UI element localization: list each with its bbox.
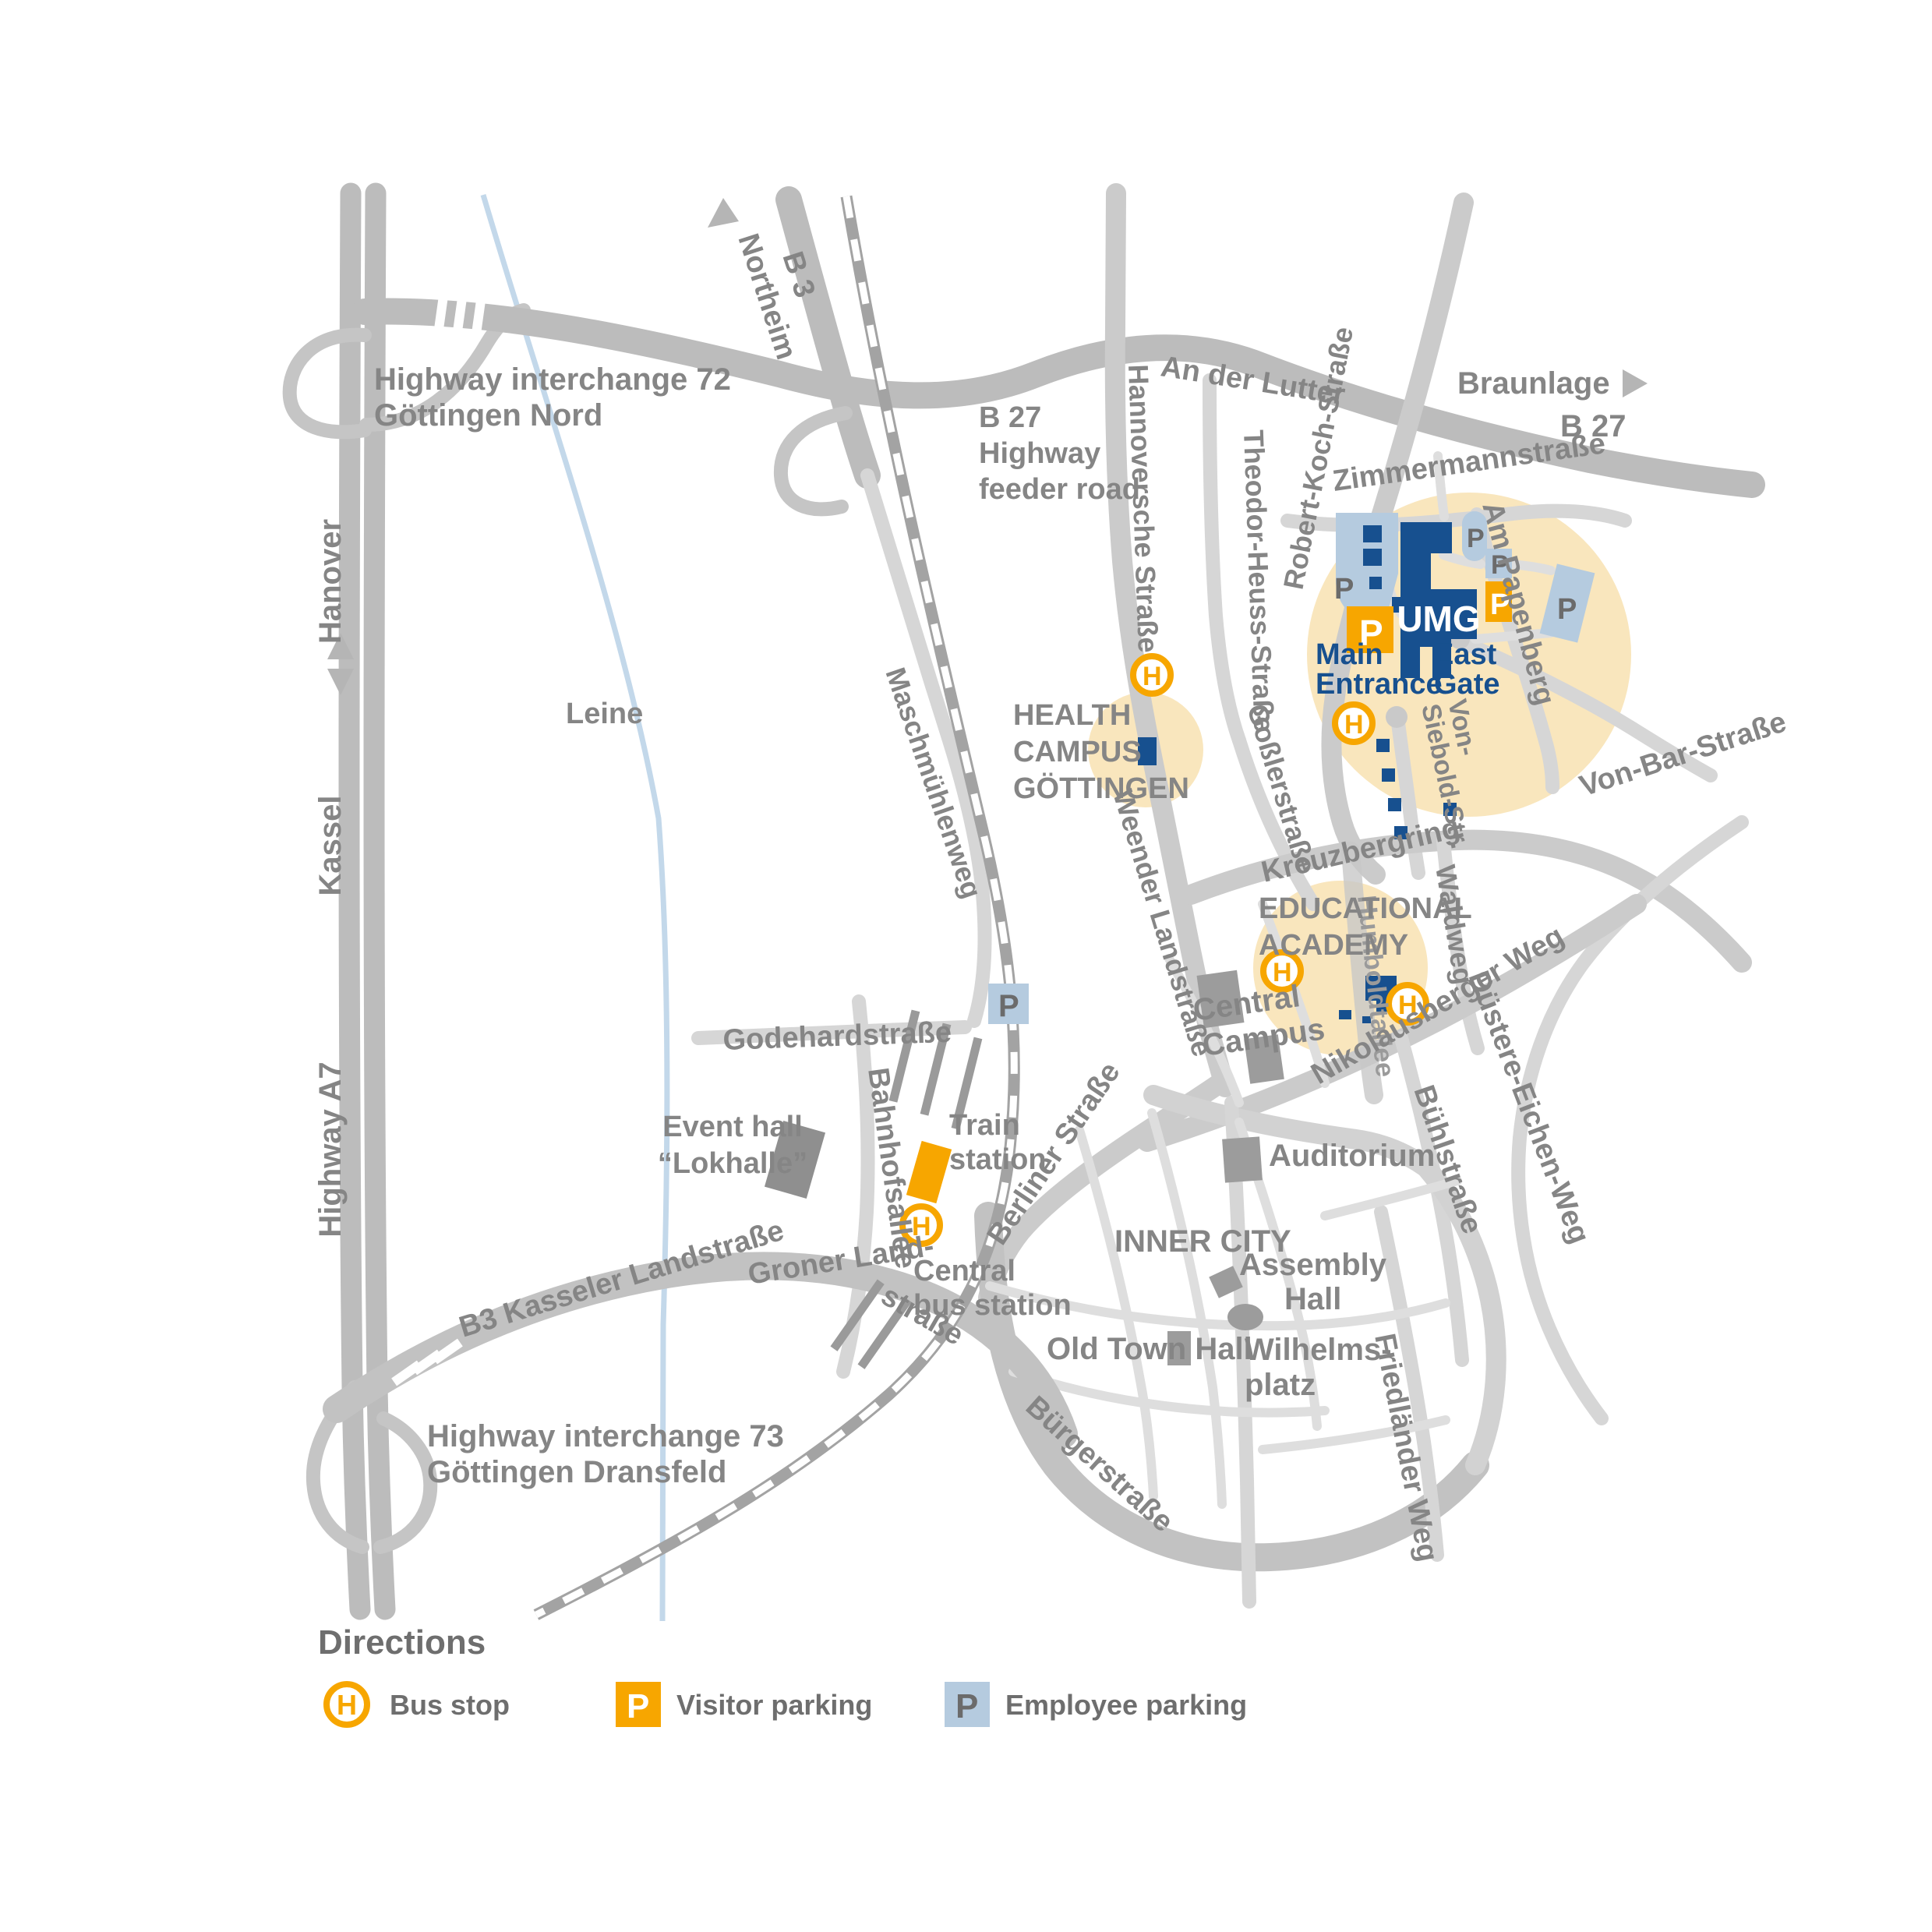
- bridge-gaps: [391, 295, 486, 1386]
- legend-employee-parking: P Employee parking: [945, 1682, 1247, 1727]
- legend-employee-parking-label: Employee parking: [1005, 1689, 1247, 1721]
- east-gate-label-1: East: [1434, 638, 1497, 671]
- wilhelmsplatz-label-2: platz: [1245, 1368, 1316, 1402]
- hanover-label: Hanover: [313, 519, 348, 644]
- train-station-building: [906, 1141, 952, 1203]
- central-bus-station-label-2: bus station: [913, 1289, 1072, 1322]
- kassel-label: Kassel: [313, 796, 348, 896]
- employee-parking-letter: P: [955, 1687, 978, 1725]
- northeim-arrow-icon: [708, 198, 739, 228]
- ramp-b3-loop: [781, 413, 846, 509]
- umg-annex-2: [1363, 549, 1382, 566]
- event-hall-label-2: “Lokhalle”: [658, 1147, 807, 1180]
- b27-feeder-label-1: B 27: [979, 401, 1041, 434]
- interchange73-label-2: Göttingen Dransfeld: [427, 1455, 726, 1489]
- von-siebold-circle: [1386, 706, 1407, 728]
- godehard-label: Godehardstraße: [722, 1016, 952, 1057]
- health-campus-label-2: CAMPUS: [1013, 736, 1142, 768]
- interchange73-label-1: Highway interchange 73: [427, 1419, 784, 1453]
- braunlage-arrow-icon: [1623, 369, 1648, 397]
- legend: Directions H Bus stop P Visitor parking …: [318, 1623, 1247, 1727]
- old-town-hall-label: Old Town Hall: [1047, 1332, 1252, 1366]
- road-theodor-heuss: [1210, 380, 1239, 740]
- employee-parking-icon: P: [1334, 573, 1354, 606]
- bus-stop-icon: H: [337, 1689, 357, 1721]
- bus-stop-icon-health-campus: H: [1133, 656, 1171, 694]
- auditorium-building: [1222, 1136, 1263, 1182]
- legend-bus-stop-label: Bus stop: [390, 1689, 510, 1721]
- duestere-eichen-label: Düstere-Eichen-Weg: [1462, 966, 1596, 1248]
- educational-academy-label-2: ACADEMY: [1259, 929, 1408, 962]
- wilhelmsplatz-building: [1227, 1304, 1263, 1330]
- b27-feeder-label-3: feeder road: [979, 473, 1140, 506]
- east-gate-label-2: Gate: [1434, 668, 1499, 701]
- train-station-label-1: Train: [949, 1109, 1020, 1142]
- bus-letter: H: [1344, 710, 1364, 740]
- visitor-parking-letter: P: [627, 1687, 649, 1725]
- umg-annex-3: [1369, 577, 1382, 589]
- leine-label: Leine: [566, 698, 643, 730]
- assembly-hall-label-2: Hall: [1284, 1282, 1341, 1316]
- interchange72-label-2: Göttingen Nord: [374, 398, 602, 433]
- central-bus-station-label-1: Central: [913, 1255, 1015, 1287]
- academy-annex-1: [1339, 1010, 1351, 1019]
- auditorium-label: Auditorium: [1269, 1139, 1435, 1173]
- train-station-label-2: station: [949, 1143, 1047, 1176]
- highway-a7-label: Highway A7: [313, 1061, 348, 1237]
- health-campus-label-1: HEALTH: [1013, 699, 1131, 732]
- theodor-heuss-label: Theodor-Heuss-Straße: [1238, 429, 1280, 733]
- assembly-hall-label-1: Assembly: [1239, 1248, 1387, 1282]
- legend-bus-stop: H Bus stop: [327, 1684, 510, 1725]
- health-campus-label-3: GÖTTINGEN: [1013, 772, 1189, 805]
- legend-title: Directions: [318, 1623, 486, 1662]
- goettingen-directions-map: P P P P P P P H H H H H: [0, 0, 1932, 1932]
- interchange72-label-1: Highway interchange 72: [374, 362, 731, 397]
- bus-letter: H: [1143, 662, 1162, 691]
- employee-parking-letter: P: [1557, 593, 1577, 626]
- event-hall-label-1: Event hall: [662, 1111, 803, 1143]
- legend-visitor-parking-label: Visitor parking: [676, 1689, 872, 1721]
- main-entrance-label-1: Main: [1316, 638, 1383, 671]
- b27-feeder-label-2: Highway: [979, 437, 1100, 470]
- umg-annex-1: [1363, 525, 1382, 542]
- inner-street-2: [1152, 1113, 1222, 1504]
- main-entrance-label-2: Entrance: [1316, 668, 1443, 701]
- umg-label: UMG: [1397, 599, 1480, 639]
- legend-visitor-parking: P Visitor parking: [616, 1682, 872, 1727]
- bus-stop-icon-umg: H: [1335, 705, 1372, 742]
- employee-parking-letter: P: [998, 989, 1019, 1023]
- educational-academy-label-1: EDUCATIONAL: [1259, 892, 1472, 925]
- wilhelmsplatz-label-1: Wilhelms-: [1245, 1333, 1392, 1367]
- braunlage-label: Braunlage: [1457, 366, 1610, 401]
